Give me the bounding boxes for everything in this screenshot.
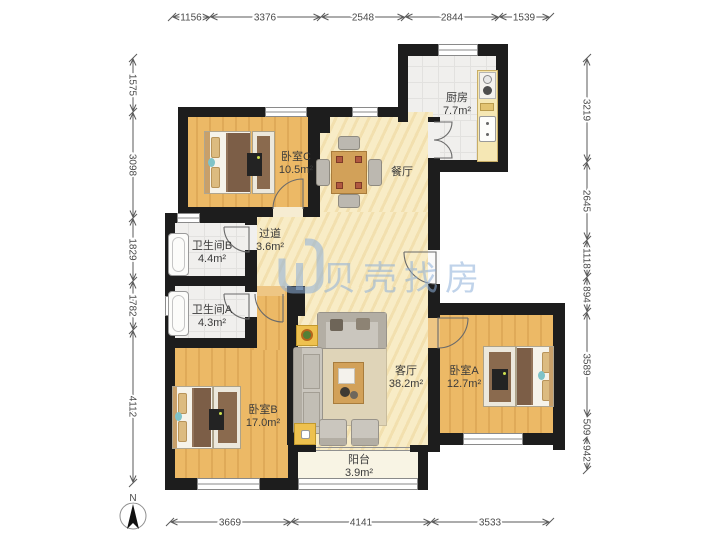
- dim-value: 1539: [513, 13, 536, 24]
- dim-value: 1118: [581, 248, 592, 269]
- dim-value: 2645: [581, 190, 592, 213]
- dim-value: 942: [581, 445, 592, 462]
- dim-value: 3533: [479, 518, 502, 529]
- dimension-layer: 1156 3376 2548 2844 1539 3669 4141 3533 …: [0, 0, 720, 540]
- compass: N: [120, 493, 146, 529]
- dim-value: 894: [581, 286, 592, 303]
- dim-value: 2548: [352, 13, 375, 24]
- dim-value: 509: [581, 419, 592, 436]
- dim-value: 4141: [350, 518, 373, 529]
- dim-value: 3098: [127, 154, 138, 177]
- dimension-top: 1156 3376 2548 2844 1539: [168, 13, 554, 24]
- dim-value: 4112: [127, 396, 138, 418]
- dim-value: 1156: [180, 13, 202, 24]
- dimension-left: 1575 3098 1829 1782 4112: [127, 54, 138, 487]
- dim-value: 1829: [127, 238, 138, 261]
- compass-north-label: N: [129, 493, 136, 504]
- dim-value: 3669: [219, 518, 242, 529]
- dim-value: 1782: [127, 294, 138, 317]
- dim-value: 2844: [441, 13, 464, 24]
- dim-value: 3219: [581, 99, 592, 122]
- floor-plan: 卧室C 10.5m² 厨房 7.7m² 餐厅 过道 3.6m² 卫生间B 4.4…: [0, 0, 720, 540]
- dimension-right: 3219 2645 1118 894 3589 509 942: [581, 54, 592, 474]
- dim-value: 3376: [254, 13, 277, 24]
- dim-value: 3589: [581, 353, 592, 376]
- dim-value: 1575: [127, 74, 138, 97]
- dimension-bottom: 3669 4141 3533: [166, 518, 554, 529]
